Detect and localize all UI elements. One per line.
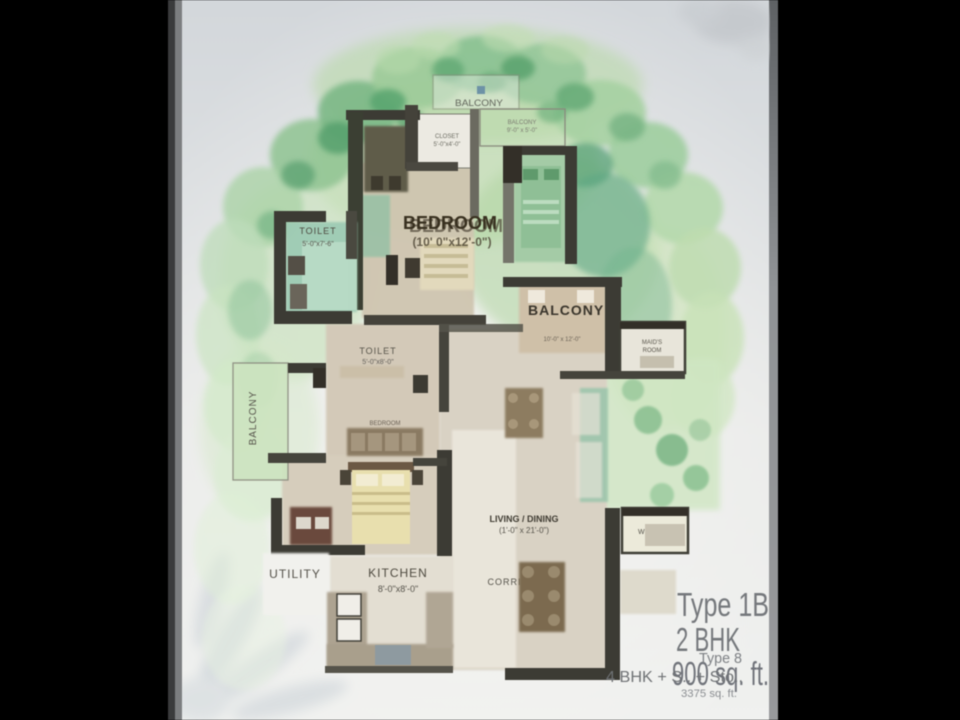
svg-text:KITCHEN: KITCHEN [368,566,428,580]
svg-text:BEDROOM: BEDROOM [403,213,497,233]
svg-text:8'-0"x8'-0": 8'-0"x8'-0" [378,584,418,594]
svg-text:UTILITY: UTILITY [269,567,321,581]
svg-text:ROOM: ROOM [643,348,662,354]
svg-text:CLOSET: CLOSET [435,134,459,140]
svg-text:W: W [638,529,645,536]
svg-text:Type 1B: Type 1B [677,586,769,623]
svg-text:BALCONY: BALCONY [455,98,503,108]
svg-text:(1'-0" x 21'-0"): (1'-0" x 21'-0") [499,526,549,535]
svg-text:Type 8: Type 8 [699,650,742,667]
svg-text:TOILET: TOILET [359,346,396,356]
svg-text:3375 sq. ft.: 3375 sq. ft. [681,688,737,700]
svg-text:BALCONY: BALCONY [528,302,604,318]
svg-text:9'-0" x 5'-0": 9'-0" x 5'-0" [507,128,537,134]
svg-text:BALCONY: BALCONY [248,391,259,446]
svg-text:MAID'S: MAID'S [642,340,662,346]
svg-text:LIVING / DINING: LIVING / DINING [489,514,558,524]
svg-text:TOILET: TOILET [299,226,336,236]
svg-text:BEDROOM: BEDROOM [369,421,400,427]
svg-text:5'-0"x4'-0": 5'-0"x4'-0" [434,142,461,148]
svg-text:(10' 0"x12'-0"): (10' 0"x12'-0") [412,235,491,249]
svg-text:5'-0"x7'-6": 5'-0"x7'-6" [302,241,334,248]
svg-text:4 BHK + S.. + Sto..: 4 BHK + S.. + Sto.. [606,669,743,686]
svg-text:BALCONY: BALCONY [508,120,537,126]
svg-text:10'-0" x 12'-0": 10'-0" x 12'-0" [544,337,581,343]
svg-text:5'-0"x8'-0": 5'-0"x8'-0" [362,359,394,366]
